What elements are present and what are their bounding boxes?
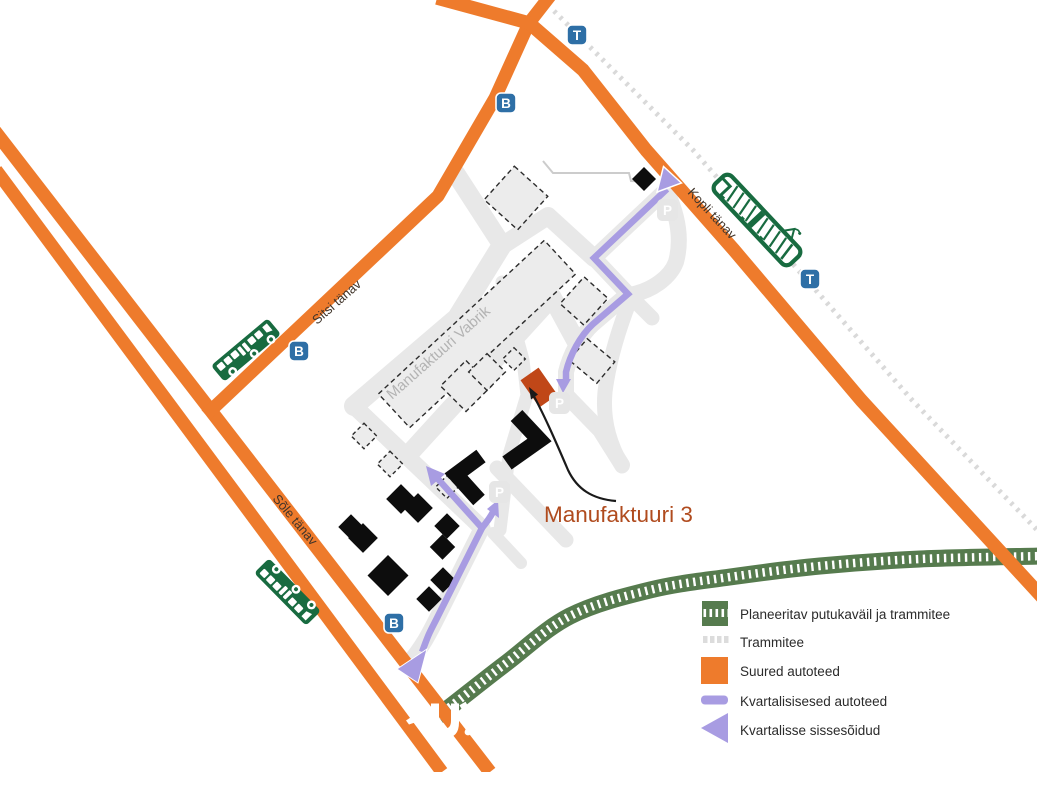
svg-text:Suured autoteed: Suured autoteed <box>740 664 840 679</box>
svg-text:P: P <box>495 485 504 500</box>
svg-text:B: B <box>294 344 304 359</box>
svg-text:B: B <box>389 616 399 631</box>
svg-text:Kvartalisisesed autoteed: Kvartalisisesed autoteed <box>740 694 887 709</box>
svg-text:T: T <box>806 272 815 287</box>
svg-text:Manufaktuuri 3: Manufaktuuri 3 <box>544 502 693 527</box>
svg-text:P: P <box>555 396 564 411</box>
svg-text:B: B <box>501 96 511 111</box>
svg-text:Planeeritav putukaväil ja tram: Planeeritav putukaväil ja trammitee <box>740 607 950 622</box>
svg-text:Kvartalisse sissesõidud: Kvartalisse sissesõidud <box>740 723 880 738</box>
svg-text:T: T <box>573 28 582 43</box>
svg-text:Trammitee: Trammitee <box>740 635 804 650</box>
svg-text:P: P <box>663 203 672 218</box>
